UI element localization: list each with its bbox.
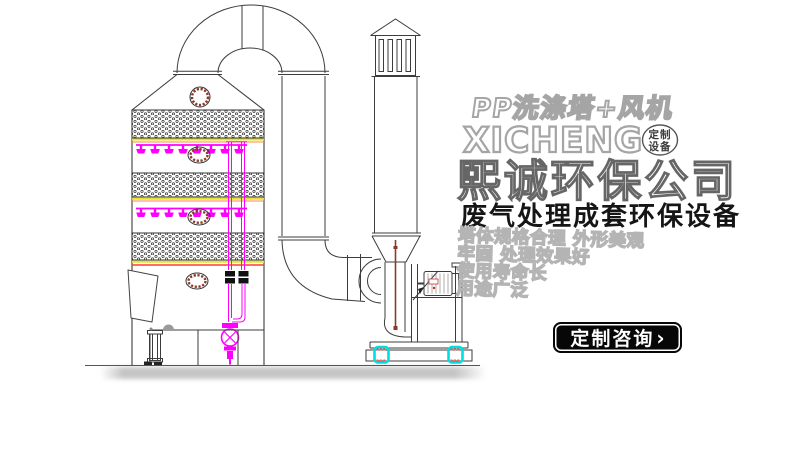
exhaust-stack	[371, 19, 422, 262]
centrifugal-fan	[359, 240, 472, 361]
motor-label	[429, 279, 438, 284]
access-door	[128, 270, 158, 322]
ground-shadow	[85, 366, 486, 380]
water-tank	[128, 270, 264, 365]
circulation-pump	[222, 323, 239, 365]
tank-side-pump	[144, 328, 163, 366]
pipe-valves	[225, 271, 249, 284]
brand-text-block: PP洗涤塔+风机 XICHENG 定制 设备 熙诚环保公司 废气处理成套环保设备…	[455, 94, 741, 305]
badge-text-line2: 设备	[649, 140, 672, 153]
spray-nozzles-row1	[136, 145, 244, 154]
cta-label: 定制咨询	[570, 324, 654, 351]
product-line-title: PP洗涤塔+风机	[470, 94, 676, 124]
company-name-title: 熙诚环保公司	[457, 156, 738, 207]
chevron-right-icon: ›	[656, 326, 664, 350]
feature-list: 塔体规格合理 外形美观 牢固 处理效果好 使用寿命长 用途广泛	[455, 225, 645, 305]
vibration-isolators	[375, 347, 463, 363]
badge-text-line1: 定制	[648, 128, 672, 141]
cta-button[interactable]: 定制咨询›	[553, 322, 682, 353]
custom-badge: 定制 设备	[643, 125, 678, 155]
feature-line: 用途广泛	[456, 278, 529, 301]
poster-canvas: PP洗涤塔+风机 XICHENG 定制 设备 熙诚环保公司 废气处理成套环保设备…	[0, 0, 800, 450]
fan-motor	[418, 272, 459, 296]
scrubber-system-drawing: PP洗涤塔+风机 XICHENG 定制 设备 熙诚环保公司 废气处理成套环保设备…	[0, 0, 800, 450]
rain-cap	[371, 19, 421, 76]
brand-name-title: XICHENG	[463, 121, 643, 161]
